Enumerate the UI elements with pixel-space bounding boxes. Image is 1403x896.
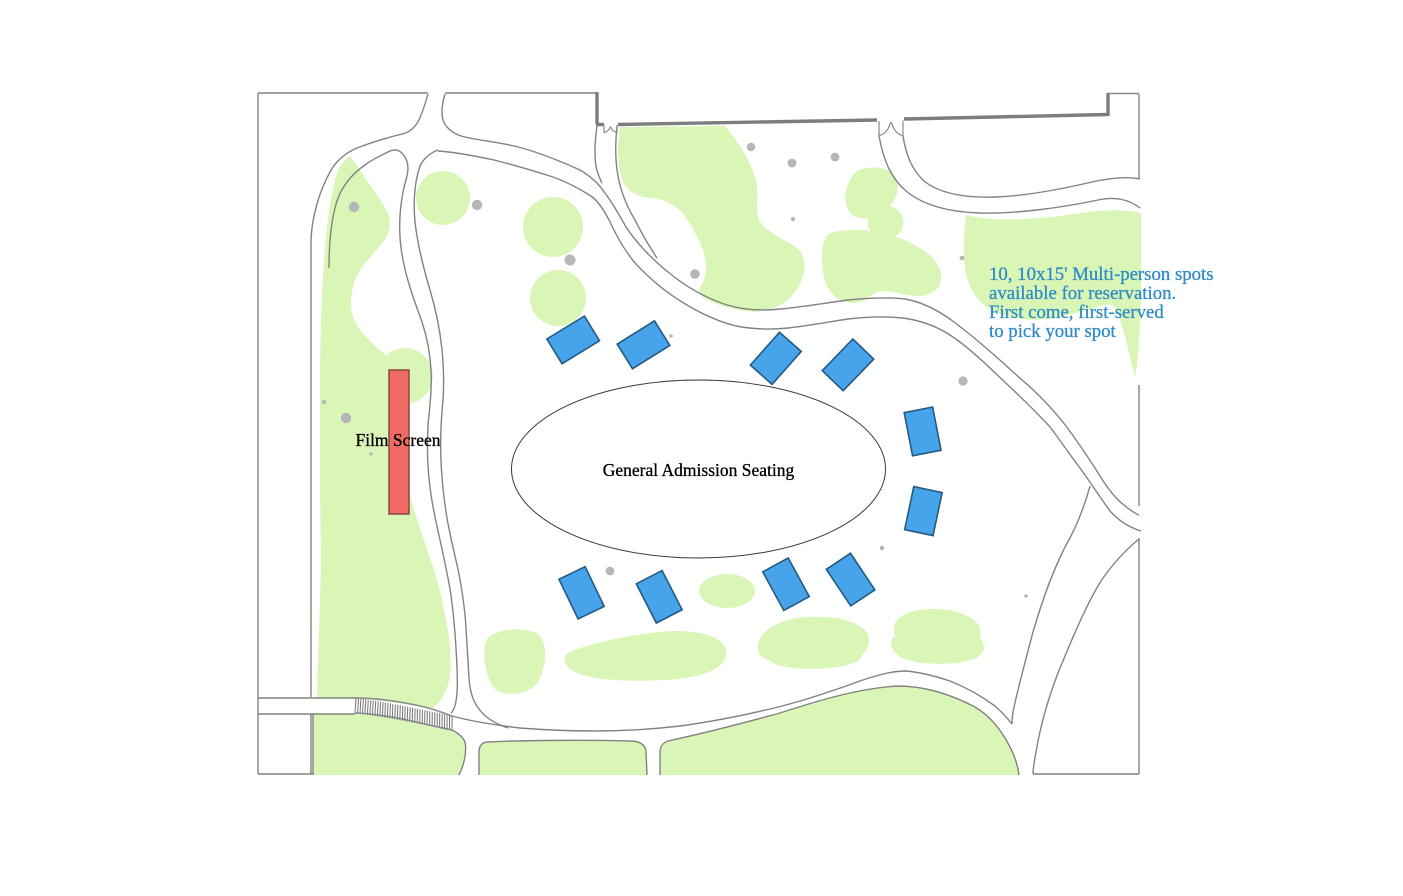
svg-text:General Admission Seating: General Admission Seating [603, 460, 795, 480]
svg-text:10, 10x15' Multi-person spots: 10, 10x15' Multi-person spots [989, 264, 1214, 285]
svg-text:available for reservation.: available for reservation. [989, 283, 1176, 304]
svg-text:First come, first-served: First come, first-served [989, 302, 1164, 323]
svg-text:to pick your spot: to pick your spot [989, 321, 1117, 342]
svg-text:Film Screen: Film Screen [355, 430, 440, 450]
